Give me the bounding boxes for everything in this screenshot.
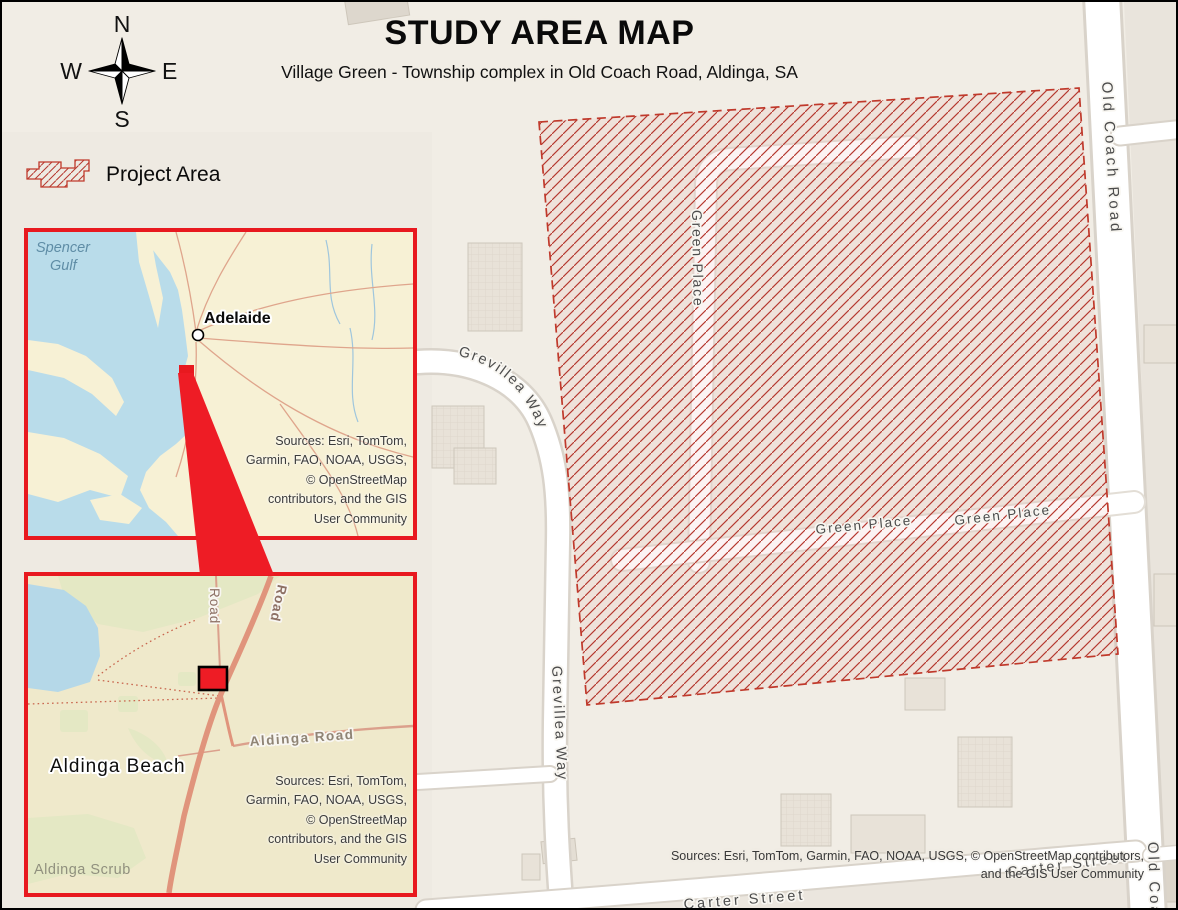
inset-local-sources: Sources: Esri, TomTom, Garmin, FAO, NOAA… [246, 772, 407, 870]
inset-overview-sources: Sources: Esri, TomTom, Garmin, FAO, NOAA… [246, 432, 407, 530]
study-area-map-page: Old Coach Road Old Coach Road Grevillea … [0, 0, 1178, 910]
city-label-adelaide: Adelaide [204, 310, 271, 327]
legend: Project Area [26, 158, 220, 192]
compass-label-west: W [60, 58, 82, 84]
water-label-spencer: Spencer [36, 240, 91, 256]
main-map-sources: Sources: Esri, TomTom, Garmin, FAO, NOAA… [671, 847, 1144, 883]
adelaide-marker [193, 330, 204, 341]
sources-line-2: and the GIS User Community [671, 865, 1144, 883]
sources-line-1: Sources: Esri, TomTom, Garmin, FAO, NOAA… [671, 847, 1144, 865]
place-label-aldinga-beach: Aldinga Beach [50, 756, 186, 777]
road-label-vertical-road: Road [207, 588, 222, 624]
area-label-aldinga-scrub: Aldinga Scrub [34, 862, 131, 878]
inset-overview-map: Spencer Gulf Adelaide Sources: Esri, Tom… [24, 228, 417, 540]
road-label-green-place-vertical: Green Place [689, 210, 707, 308]
inset-local-map: Road Road Aldinga Road Aldinga Beach Ald… [24, 572, 417, 897]
compass-label-east: E [162, 58, 177, 84]
project-area-polygon [539, 88, 1118, 705]
project-location-marker-small [179, 365, 194, 380]
project-area-swatch-icon [26, 158, 94, 192]
compass-label-north: N [114, 11, 131, 37]
north-arrow-icon: N S W E [42, 7, 212, 147]
compass-label-south: S [114, 106, 129, 132]
water-label-gulf: Gulf [50, 258, 79, 274]
legend-label-project-area: Project Area [106, 163, 220, 187]
project-location-marker [199, 667, 227, 690]
